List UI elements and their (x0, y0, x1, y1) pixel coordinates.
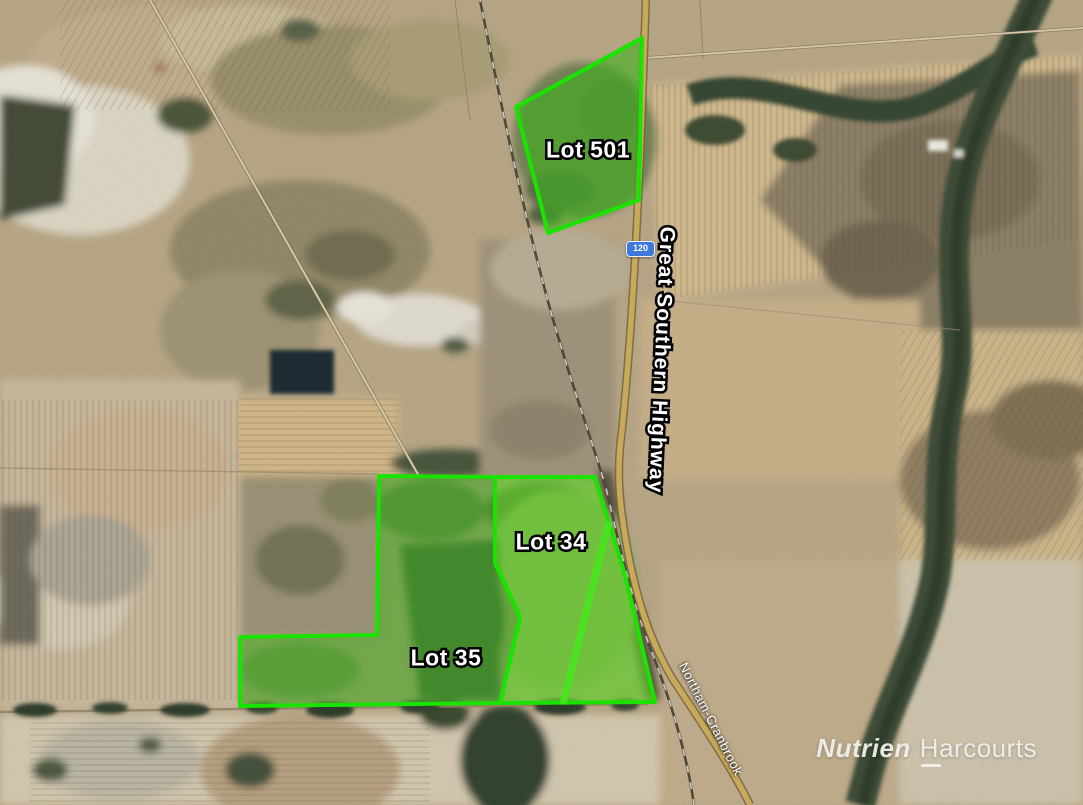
aerial-map: Lot 501Lot 34Lot 35 Great Southern Highw… (0, 0, 1083, 805)
grain-texture (0, 0, 1083, 805)
satellite-imagery (0, 0, 1083, 805)
